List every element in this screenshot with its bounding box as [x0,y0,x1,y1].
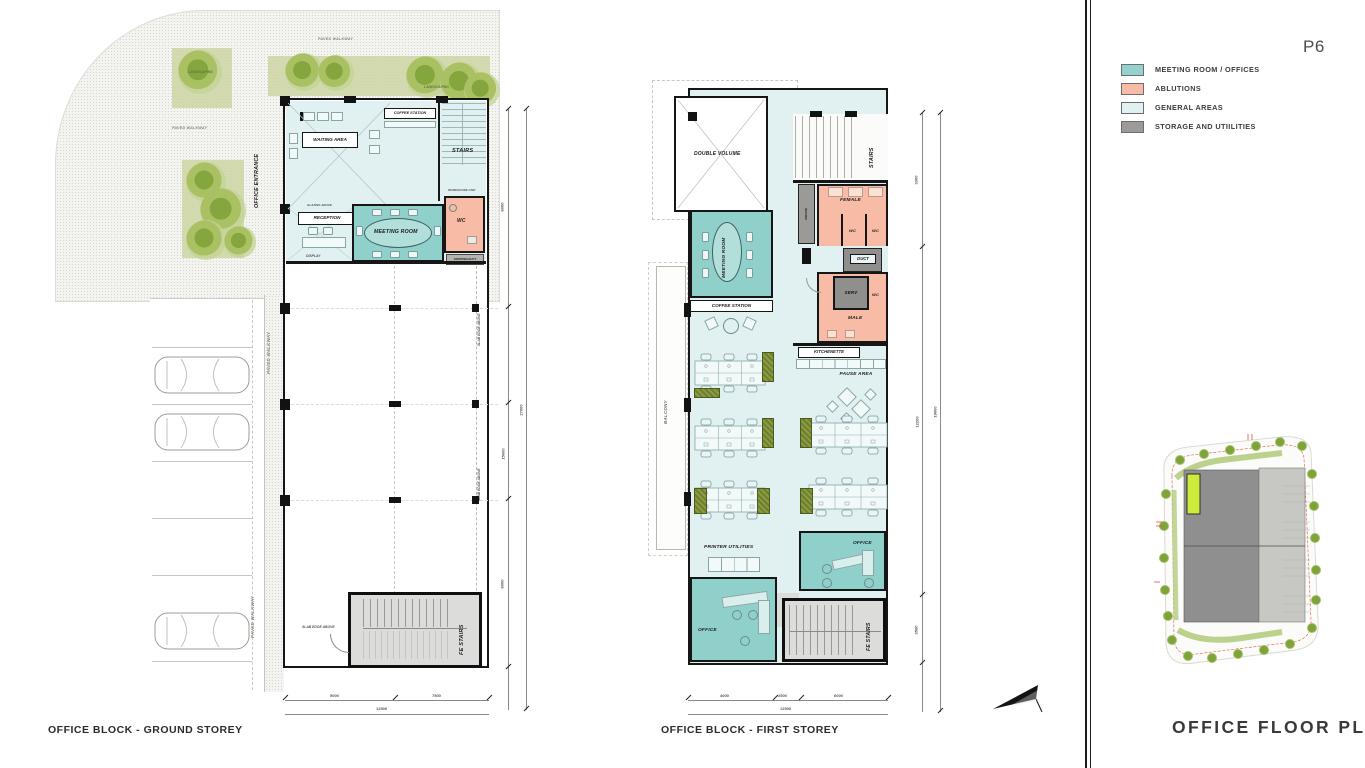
dim-tick [524,706,530,712]
double-volume: DOUBLE VOLUME [674,96,768,212]
toilet-cubicle [848,187,863,197]
paved-walkway-label: PAVED WALKWAY [172,127,207,131]
chair [702,232,709,242]
legend-swatch-meeting [1121,64,1144,76]
chair [702,268,709,278]
planter [762,352,774,382]
coffee-station-label: COFFEE STATION [690,300,773,312]
sofa [331,112,343,121]
dim-number: 3300 [914,176,918,185]
desk-cluster [694,417,766,459]
office-chair [864,578,874,588]
paved-walkway-label: PAVED WALKWAY [318,38,353,42]
office-entrance-label: OFFICE ENTRANCE [254,108,260,208]
private-store: PRIVATE [798,184,815,244]
fe-stairs-room: FE STAIRS [348,592,482,668]
parking-stall-line [152,575,252,576]
balcony-label: BALCONY [664,368,669,424]
presentation-sheet: PAVED WALKWAY PAVED WALKWAY PAVED WALKWA… [0,0,1365,768]
desk-cluster [808,476,888,518]
sheet-divider [1085,0,1091,768]
wc-fixture [467,236,477,244]
dim-number: 6000 [500,203,504,212]
column [389,401,401,407]
office-chair [822,578,832,588]
sheet-title: OFFICE FLOOR PLANS [1172,719,1365,737]
site-key-plan-thumbnail [1132,430,1347,670]
printer-utilities-label: PRINTER UTILITIES [704,545,753,551]
serv-label: SERV [845,290,858,295]
tree [186,220,226,260]
coffee-counter [384,121,436,128]
meeting-room-label: MEETING ROOM [722,226,728,278]
stairs-label: STAIRS [869,128,875,168]
chair [408,209,418,216]
dim-number: 12200 [916,416,920,427]
pwd-fixture [802,248,811,264]
column [280,399,290,410]
chair [356,226,363,236]
dimension-line [508,108,509,710]
duct-label: DUCT [850,254,876,264]
coffee-station-text: COFFEE STATION [394,112,427,116]
column [280,495,290,506]
planter [757,488,770,514]
column [389,305,401,311]
landscaping-label: LANDSCAPING [188,71,213,75]
reception-text: RECEPTION [314,216,341,221]
stairs-room: STAIRS [793,114,888,180]
first-storey-plan: BALCONY DOUBLE VOLUME STAIRS PRIVATE F [560,0,1030,768]
wc-label: WC [872,229,879,234]
column [845,111,857,117]
legend-swatch-general [1121,102,1144,114]
dim-number: 19000 [934,406,938,417]
paved-walkway-label: PAVED WALKWAY [251,576,256,638]
meeting-room-label: MEETING ROOM [374,230,418,236]
waiting-area-text: WAITING AREA [313,138,347,143]
dim-tick [938,708,944,714]
car [153,352,251,398]
dim-tick [487,695,493,701]
lounge-chair [289,133,298,144]
display-note: DISPLAY [306,255,320,259]
glazing-note: GLAZING ABOVE [307,204,332,207]
ground-caption: OFFICE BLOCK - GROUND STOREY [48,725,243,736]
dimension-line [688,700,888,701]
planter [800,418,812,448]
parking-stall-line [152,661,252,662]
dim-number: 4000 [720,694,729,698]
double-volume-label: DOUBLE VOLUME [694,152,741,158]
stair-treads [363,599,449,627]
chair [434,226,441,236]
duct-text: DUCT [857,257,869,261]
stair-treads [789,605,855,655]
wc-label: WC [457,219,466,225]
stair-divider [363,628,467,629]
wc-label: WC [872,293,879,298]
chair [372,251,382,258]
private-label: PRIVATE [805,208,808,220]
column [688,112,697,121]
sofa [303,112,315,121]
office-desk [758,600,770,634]
legend-item: ABLUTIONS [1121,83,1201,95]
parking-stall-line [152,347,252,348]
pause-area-label: PAUSE AREA [838,372,874,378]
legend-label: STORAGE AND UTIILITIES [1155,123,1256,130]
column [472,496,479,504]
office-chair [822,564,832,574]
coffee-station-text: COFFEE STATION [712,304,751,309]
kitchenette-text: KITCHENETTE [814,350,844,354]
column [389,497,401,503]
office-desk [862,550,874,576]
female-label: FEMALE [840,198,861,204]
column [684,492,691,506]
planter [694,488,707,514]
column [684,398,691,412]
wall [793,180,888,183]
dimension-line [285,714,489,715]
dim-number: 5000 [330,694,339,698]
chair [372,209,382,216]
dim-number: 12500 [376,707,387,711]
legend-item: GENERAL AREAS [1121,102,1223,114]
fe-stairs-label: FE STAIRS [867,609,873,651]
wall [286,261,486,264]
column [280,303,290,314]
legend-swatch-storage [1121,121,1144,133]
warehouse-link-note: WAREHOUSE LINK [448,189,476,192]
car [153,409,251,455]
office-label: OFFICE [853,541,872,547]
fe-stairs-label: FE STAIRS [459,605,465,655]
planter [694,388,720,398]
stair-divider [462,103,463,165]
sofa [317,112,329,121]
chair [308,227,318,235]
coffee-station-label: COFFEE STATION [384,108,436,119]
lounge-chair [289,148,298,159]
planter [800,488,813,514]
parking-stall-line [152,404,252,405]
planter [762,418,774,448]
desk-cluster [808,414,888,456]
dimension-line [940,112,941,712]
slab-edge-note: SLAB EDGE ABOVE [478,455,482,501]
office-chair [740,636,750,646]
stair-treads [442,103,486,165]
chair [746,250,753,260]
tree [318,55,354,91]
fe-stairs-room: FE STAIRS [782,598,886,662]
dim-number: 12500 [780,707,791,711]
stair-treads-dashed [363,631,449,659]
kitchen-counter [796,359,886,369]
legend-label: GENERAL AREAS [1155,104,1223,111]
chair [323,227,333,235]
dim-number: 3500 [914,626,918,635]
toilet-cubicle [828,187,843,197]
page-number: P6 [1303,38,1325,55]
parking-stall-line [152,518,252,519]
tree [224,226,256,258]
column [810,111,822,117]
dim-tick [886,695,892,701]
dim-number: 27000 [520,404,524,415]
dim-number: 2500 [778,694,787,698]
urinal [827,330,837,338]
dimension-line [688,714,888,715]
cafe-table [723,318,739,334]
office-chair [748,610,758,620]
legend-label: ABLUTIONS [1155,85,1201,92]
dimension-line [526,108,527,710]
legend-item: MEETING ROOM / OFFICES [1121,64,1259,76]
chair [408,251,418,258]
lounge-chair [369,145,380,154]
legend-swatch-ablutions [1121,83,1144,95]
stair-treads [795,116,857,178]
office-chair [732,610,742,620]
chair [390,251,400,258]
dim-number: 6000 [500,580,504,589]
wall [793,343,888,346]
chair [702,250,709,260]
printer-counter [708,557,760,572]
urinal [845,330,855,338]
serv-room: SERV [833,276,869,310]
parking-stall-line [152,461,252,462]
office-label: OFFICE [698,628,717,634]
wc-label: WC [849,229,856,234]
north-arrow-icon [988,680,1044,718]
waiting-area-label: WAITING AREA [302,132,358,148]
paved-walkway-label: PAVED WALKWAY [267,312,272,374]
lounge-chair [369,130,380,139]
column [684,303,691,317]
male-label: MALE [848,316,862,322]
toilet-cubicle [868,187,883,197]
reception-label: RECEPTION [298,212,356,225]
legend-label: MEETING ROOM / OFFICES [1155,66,1259,73]
balcony [656,266,686,550]
chair [746,232,753,242]
kitchenette-label: KITCHENETTE [798,347,860,358]
chair [390,209,400,216]
chair [746,268,753,278]
legend-item: STORAGE AND UTIILITIES [1121,121,1256,133]
first-caption: OFFICE BLOCK - FIRST STOREY [661,725,839,736]
reception-desk [302,237,346,248]
dimension-line [922,112,923,712]
dim-number: 7500 [432,694,441,698]
ground-storey-plan: PAVED WALKWAY PAVED WALKWAY PAVED WALKWA… [0,0,560,768]
slab-edge-note: SLAB EDGE ABOVE [302,626,335,630]
dim-number: 6000 [834,694,843,698]
car [153,608,251,654]
wc-fixture [449,204,457,212]
column [472,400,479,408]
column [472,304,479,312]
dimension-line [285,700,489,701]
landscaping-label: LANDSCAPING [424,86,449,90]
stairs-label: STAIRS [452,148,473,154]
dim-number: 15000 [502,448,506,459]
